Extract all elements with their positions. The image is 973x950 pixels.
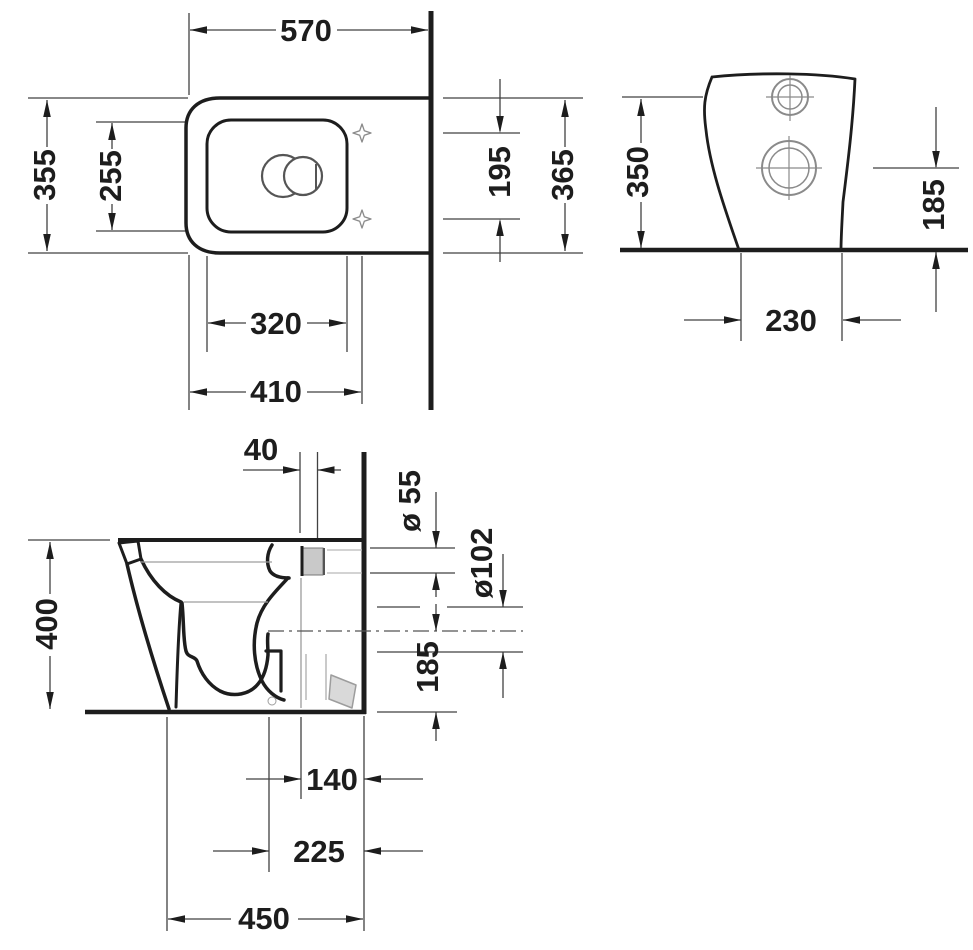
arrow-185s-b bbox=[432, 712, 440, 729]
arrow-185s-t bbox=[432, 614, 440, 631]
arrow-320-l bbox=[208, 319, 225, 327]
dim-label-570: 570 bbox=[280, 13, 332, 48]
arrow-185b-b bbox=[932, 252, 940, 269]
arrow-450-l bbox=[168, 915, 185, 923]
dim-label-40: 40 bbox=[244, 432, 278, 467]
dim-label-140: 140 bbox=[306, 762, 358, 797]
arrow-570-r bbox=[411, 26, 428, 34]
arrow-225-l bbox=[252, 847, 269, 855]
arrow-570-l bbox=[190, 26, 207, 34]
arrow-195-t bbox=[496, 116, 504, 133]
seat-front-tab bbox=[119, 541, 141, 564]
arrow-230-l bbox=[724, 316, 741, 324]
dim-label-225: 225 bbox=[293, 834, 345, 869]
drawing-canvas: 57035525532041019536535018523040ø 55ø102… bbox=[0, 0, 973, 950]
dim-label-185-back: 185 bbox=[916, 179, 951, 231]
arrow-230-r bbox=[843, 316, 860, 324]
dim-label-o102: ø102 bbox=[464, 528, 499, 599]
dim-label-255: 255 bbox=[93, 150, 128, 202]
arrow-185b-t bbox=[932, 151, 940, 168]
arrow-350-t bbox=[637, 99, 645, 116]
dim-label-230: 230 bbox=[765, 303, 817, 338]
plan-view: 570355255320410195365 bbox=[27, 11, 583, 410]
flush-pipe-section bbox=[303, 548, 323, 575]
arrow-255-t bbox=[108, 123, 116, 140]
pedestal-inner-edge bbox=[176, 602, 181, 707]
arrow-140-l bbox=[284, 775, 301, 783]
dim-label-o55: ø 55 bbox=[392, 470, 427, 532]
arrow-450-r bbox=[346, 915, 363, 923]
arrow-355-t bbox=[43, 100, 51, 117]
arrow-o102-b bbox=[499, 652, 507, 669]
arrow-255-b bbox=[108, 213, 116, 230]
technical-drawing-screenshot: 57035525532041019536535018523040ø 55ø102… bbox=[0, 0, 973, 950]
arrow-225-r bbox=[364, 847, 381, 855]
side-section-view: 40ø 55ø102185400140225450 bbox=[28, 432, 523, 936]
arrow-400-t bbox=[46, 542, 54, 559]
dim-label-185-side: 185 bbox=[410, 641, 445, 693]
dim-label-410: 410 bbox=[250, 374, 302, 409]
arrow-320-r bbox=[329, 319, 346, 327]
back-view: 350185230 bbox=[620, 74, 968, 341]
rim-underside-curve bbox=[141, 559, 181, 602]
arrow-355-b bbox=[43, 234, 51, 251]
dim-label-350: 350 bbox=[620, 146, 655, 198]
arrow-40-l bbox=[283, 466, 300, 474]
dim-label-450: 450 bbox=[238, 901, 290, 936]
fixing-hole-cross-top bbox=[353, 124, 371, 142]
dim-label-195: 195 bbox=[482, 146, 517, 198]
drain-mark bbox=[268, 697, 276, 705]
arrow-o55-b bbox=[432, 573, 440, 590]
body-outline-back bbox=[704, 74, 855, 250]
arrow-195-b bbox=[496, 219, 504, 236]
front-outer-profile bbox=[127, 564, 169, 709]
outlet-elbow bbox=[329, 675, 356, 708]
arrow-o55-t bbox=[432, 531, 440, 548]
arrow-365-t bbox=[561, 100, 569, 117]
arrow-140-r bbox=[364, 775, 381, 783]
dim-label-355: 355 bbox=[27, 149, 62, 201]
fixing-hole-cross-bottom bbox=[353, 210, 371, 228]
arrow-40-r bbox=[318, 466, 335, 474]
arrow-400-b bbox=[46, 692, 54, 709]
arrow-o102-t bbox=[499, 590, 507, 607]
arrow-410-l bbox=[190, 388, 207, 396]
dim-label-365: 365 bbox=[545, 149, 580, 201]
arrow-410-r bbox=[344, 388, 361, 396]
arrow-365-b bbox=[561, 234, 569, 251]
arrow-350-b bbox=[637, 231, 645, 248]
dim-label-320: 320 bbox=[250, 306, 302, 341]
dim-label-400: 400 bbox=[29, 598, 64, 650]
